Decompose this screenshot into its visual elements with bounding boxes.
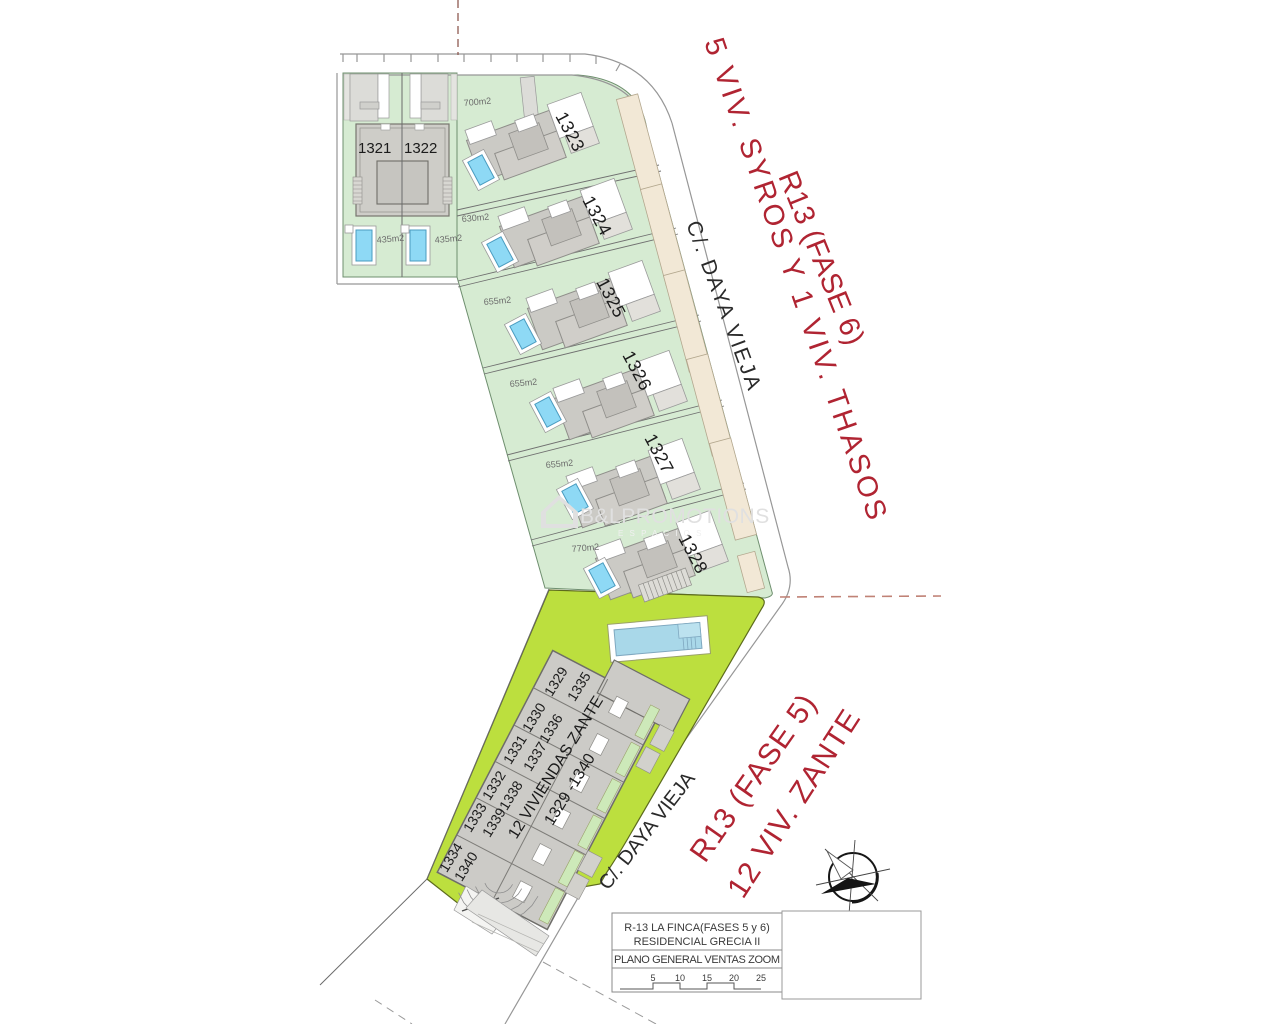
svg-text:E S P A C I O S: E S P A C I O S — [618, 529, 703, 538]
svg-text:1321: 1321 — [358, 140, 391, 157]
svg-text:15: 15 — [702, 973, 712, 983]
svg-text:10: 10 — [675, 973, 685, 983]
svg-text:20: 20 — [729, 973, 739, 983]
svg-text:25: 25 — [756, 973, 766, 983]
svg-text:B&LPROMOTIONS: B&LPROMOTIONS — [580, 505, 770, 528]
svg-text:R-13 LA FINCA(FASES 5 y 6): R-13 LA FINCA(FASES 5 y 6) — [624, 922, 770, 934]
svg-text:1322: 1322 — [404, 140, 437, 157]
svg-text:PLANO GENERAL VENTAS ZOOM: PLANO GENERAL VENTAS ZOOM — [614, 954, 780, 966]
svg-text:RESIDENCIAL GRECIA II: RESIDENCIAL GRECIA II — [634, 936, 761, 948]
svg-text:5: 5 — [650, 973, 655, 983]
